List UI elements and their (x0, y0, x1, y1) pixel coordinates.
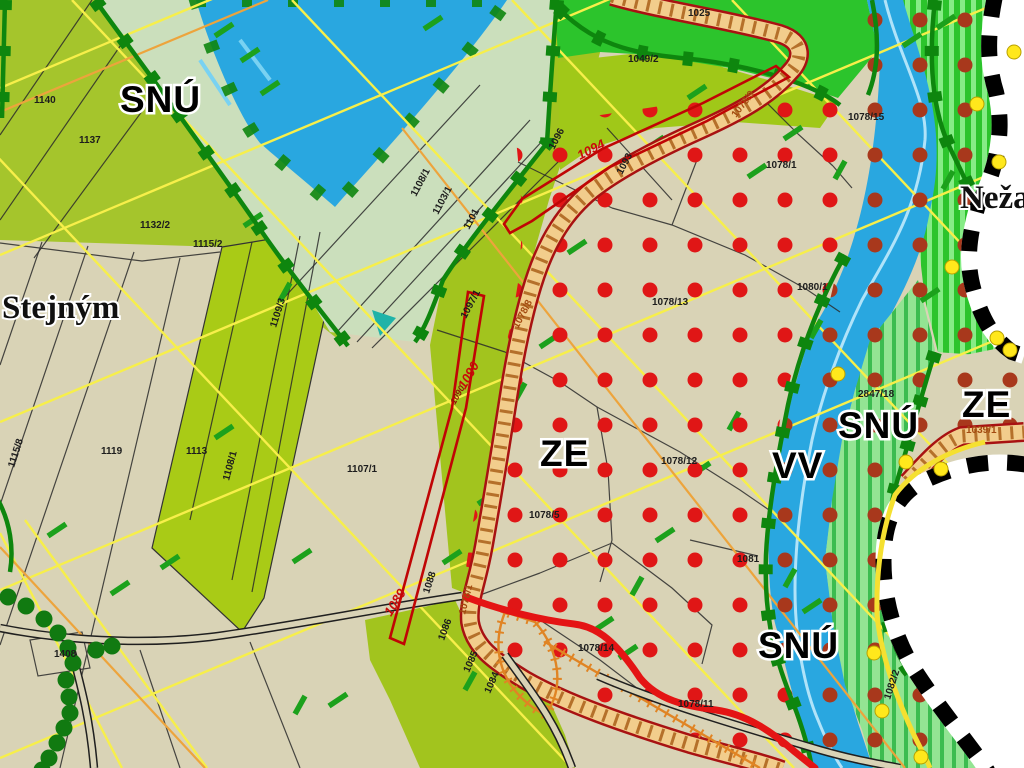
zone-label-snu-bottom: SNÚ (758, 624, 839, 666)
parcel-label: 1115/2 (193, 239, 223, 250)
parcel-label: 1039/1 (966, 425, 997, 436)
zone-label-ze-center: ZE (540, 433, 589, 474)
parcel-label: 1132/2 (140, 220, 170, 231)
parcel-label: 1078/15 (848, 112, 885, 123)
place-label-stejnym: Stejným (2, 290, 119, 326)
parcel-label: 1078/13 (652, 297, 689, 308)
parcel-label: 1078/11 (678, 699, 714, 710)
parcel-label: 1408 (54, 649, 77, 660)
parcel-label: 2847/18 (858, 389, 895, 400)
parcel-label: 1078/1 (766, 160, 797, 171)
parcel-label: 1140 (34, 95, 56, 106)
parcel-label: 1078/5 (529, 510, 560, 521)
parcel-label: 1025 (688, 8, 711, 19)
zone-label-snu-right: SNÚ (838, 404, 919, 446)
map-image[interactable]: 1140 1137 1132/2 1115/2 1115/8 1119 1113… (0, 0, 1024, 768)
parcel-label: 1078/12 (661, 456, 698, 467)
place-label-neza: Neža (960, 180, 1024, 216)
zone-label-vv: VV (772, 445, 823, 486)
zone-label-snu-topleft: SNÚ (120, 78, 201, 120)
parcel-label: 1049/2 (628, 54, 659, 65)
parcel-label: 1119 (101, 446, 123, 457)
parcel-label: 1080/1 (797, 282, 828, 293)
zoning-map: 1140 1137 1132/2 1115/2 1115/8 1119 1113… (0, 0, 1024, 768)
parcel-label: 1078/14 (578, 643, 615, 654)
parcel-label: 1081 (737, 554, 760, 565)
parcel-label: 1107/1 (347, 464, 377, 475)
zone-label-ze-right: ZE (962, 384, 1011, 425)
parcel-label: 1113 (186, 446, 208, 457)
parcel-label: 1137 (79, 135, 101, 146)
